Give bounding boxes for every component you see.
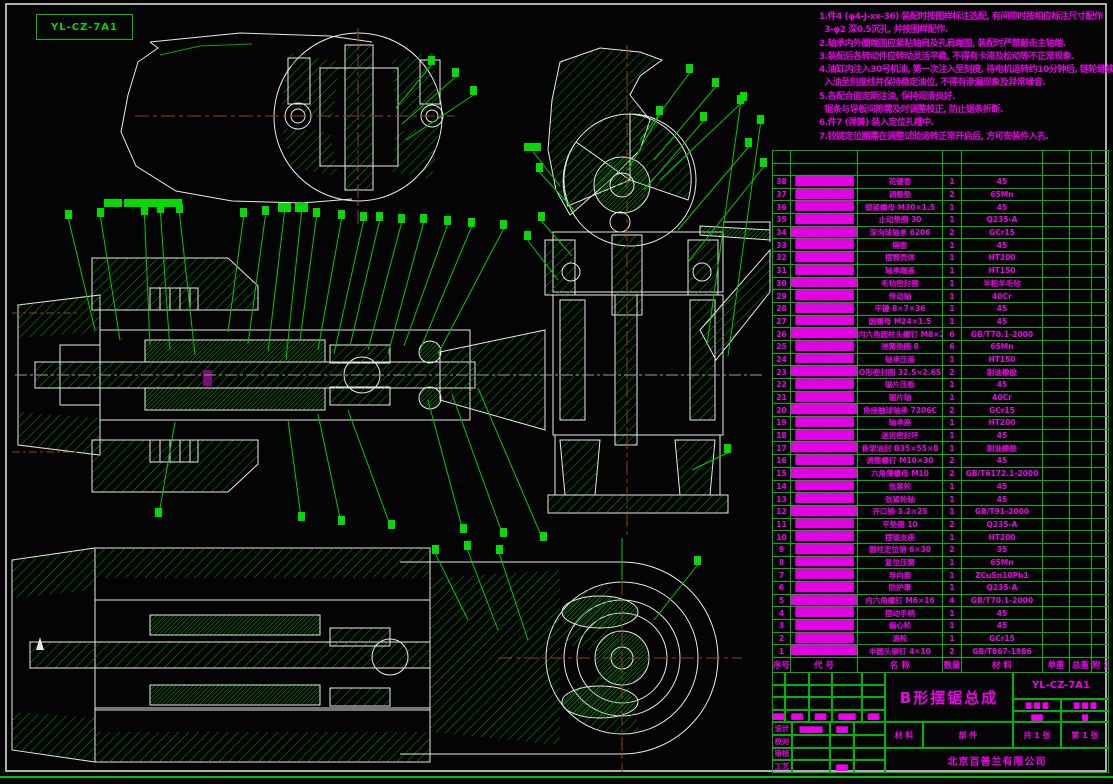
bom-qty: 1 [943,176,962,189]
bom-total-weight [1070,607,1092,620]
bom-qty: 1 [943,302,962,315]
bom-header: 材 料 [962,658,1043,672]
balloon-marker [155,508,162,517]
bom-seq: 4 [773,607,791,620]
bom-qty: 2 [943,404,962,417]
bom-note [1092,226,1109,239]
bom-note [1092,239,1109,252]
bom-unit-weight [1043,505,1070,518]
balloon-marker [540,532,547,541]
bom-note [1092,531,1109,544]
bom-total-weight [1070,252,1092,265]
bom-note [1092,417,1109,430]
signature-cell [792,748,830,761]
bom-seq: 35 [773,214,791,227]
assembly-title: B形摆锯总成 [885,672,1013,722]
bom-unit-weight [1043,252,1070,265]
bom-unit-weight [1043,569,1070,582]
bom-material: 45 [962,493,1043,506]
part-label: 部 件 [923,722,1013,748]
balloon-marker [398,214,405,223]
revision-cell [862,685,885,698]
bom-qty: 1 [943,379,962,392]
signature-cell [854,735,885,748]
bom-seq: 33 [773,239,791,252]
bom-total-weight [1070,366,1092,379]
bom-code: ██████████ [791,417,858,430]
bom-unit-weight [1043,379,1070,392]
bom-unit-weight [1043,290,1070,303]
bom-unit-weight [1043,315,1070,328]
revision-bar [104,199,122,207]
bom-qty: 2 [943,226,962,239]
bom-unit-weight [1043,201,1070,214]
bom-qty: 1 [943,214,962,227]
bom-material: 45 [962,239,1043,252]
bom-total-weight [1070,543,1092,556]
bom-unit-weight [1043,366,1070,379]
bom-seq: 3 [773,620,791,633]
bom-code: ██████████ [791,632,858,645]
bom-name: 内六角螺钉 M6×16 [858,594,943,607]
note-line: 锯条与导板间隙需及时调整校正, 防止锯条折断. [819,104,1111,117]
bom-code: ██████████ [791,214,858,227]
revision-cell: ▆▆ [862,710,885,723]
bom-row: 26██████████████内六角圆柱头螺钉 M8×256GB/T70.1-… [773,328,1109,341]
bom-material: 半粗羊毛毡 [962,277,1043,290]
signature-cell: ▆▆▆▆ [792,722,830,735]
bom-unit-weight [1043,176,1070,189]
bom-seq: 22 [773,379,791,392]
bom-material: HT150 [962,353,1043,366]
bom-qty: 1 [943,277,962,290]
title-block: B形摆锯总成 材 料 部 件 北京百普兰有限公司 YL-CZ-7A1 共 1 张… [772,672,1109,773]
balloon-marker [745,138,752,147]
bom-note [1092,302,1109,315]
bom-code: █████████████ [791,442,858,455]
bom-seq: 25 [773,340,791,353]
bom-total-weight [1070,556,1092,569]
bom-total-weight [1070,531,1092,544]
bom-name: 偏心轮 [858,620,943,633]
bom-header: 附 注 [1092,658,1109,672]
bom-total-weight [1070,290,1092,303]
revision-cell [785,697,809,710]
balloon-marker [737,95,744,104]
bom-code: ██████████ [791,556,858,569]
bom-unit-weight [1043,417,1070,430]
bom-note [1092,645,1109,658]
bom-material: GCr15 [962,632,1043,645]
sheet-number-box: YL-CZ-7A1 [36,14,133,40]
leader-line [438,229,504,354]
stage-mark-cell: ▆ ▆ ▆ [1061,699,1109,711]
revision-cell: ▆▆ [772,710,785,723]
bom-total-weight [1070,467,1092,480]
bom-total-weight [1070,455,1092,468]
bom-note [1092,632,1109,645]
bom-name: 半圆头铆钉 4×10 [858,645,943,658]
leader-line [334,221,364,354]
detail-purple-seal [203,370,212,386]
bom-unit-weight [1043,480,1070,493]
bom-qty: 1 [943,505,962,518]
bom-qty: 2 [943,543,962,556]
bom-seq: 31 [773,264,791,277]
bom-total-weight [1070,277,1092,290]
bom-note [1092,366,1109,379]
bom-row: 17█████████████骨架油封 B35×55×81耐油橡胶 [773,442,1109,455]
balloon-marker [500,528,507,537]
bom-note [1092,214,1109,227]
bom-material: 65Mn [962,556,1043,569]
bom-name: 摆动手柄 [858,607,943,620]
bom-code: █████████████ [791,404,858,417]
bom-code: ██████████ [791,518,858,531]
bom-qty: 1 [943,391,962,404]
bom-total-weight [1070,226,1092,239]
bom-seq: 7 [773,569,791,582]
bom-code: ██████████ [791,480,858,493]
leader-line [404,225,448,346]
bom-row: 6██████████防护罩1Q235-A [773,582,1109,595]
bom-code: ██████████████ [791,467,858,480]
revision-cell [832,697,862,710]
bom-name: 轴承端盖 [858,264,943,277]
bom-note [1092,176,1109,189]
bom-code: ██████████ [791,543,858,556]
bom-note [1092,404,1109,417]
signature-cell: ▆▆ [830,760,854,773]
stage-mark-cell: ▆▆ [1013,711,1061,723]
bom-name: 隔套 [858,239,943,252]
bom-seq: 38 [773,176,791,189]
bom-seq: 28 [773,302,791,315]
bom-name: 轴承座 [858,417,943,430]
bom-qty: 2 [943,455,962,468]
revision-cell [785,685,809,698]
bom-table: 38██████████花键套14537██████████调整垫265Mn36… [772,150,1109,673]
bom-seq: 29 [773,290,791,303]
bom-qty: 1 [943,531,962,544]
bom-total-weight [1070,645,1092,658]
bom-qty: 1 [943,239,962,252]
signature-cell [854,760,885,773]
bom-seq: 37 [773,188,791,201]
bom-qty: 1 [943,620,962,633]
balloon-marker [360,212,367,221]
note-line: 5.各配合面定期注油, 保持润滑良好. [819,91,1111,104]
bom-total-weight [1070,505,1092,518]
bom-seq: 18 [773,429,791,442]
bom-name: 深沟球轴承 6206 [858,226,943,239]
signature-cell [792,735,830,748]
bom-row: 25██████████弹簧垫圈 8665Mn [773,340,1109,353]
bom-code: ██████████ [791,379,858,392]
bom-note [1092,518,1109,531]
balloon-marker [295,203,308,212]
stage-mark-cell: ▆ ▆ ▆ [1013,699,1061,711]
bom-qty: 1 [943,252,962,265]
bom-name: 圆柱定位销 6×30 [858,543,943,556]
bom-qty: 1 [943,442,962,455]
bom-unit-weight [1043,277,1070,290]
bom-row: 23█████████████O形密封圈 32.5×2.652耐油橡胶 [773,366,1109,379]
bom-code: ██████████ [791,290,858,303]
bom-note [1092,328,1109,341]
signature-cell: ▆▆ [830,722,854,735]
revision-cell: ▆▆ [785,710,809,723]
bom-code: ██████████ [791,429,858,442]
balloon-marker [496,545,503,554]
balloon-marker [538,212,545,221]
revision-cell [785,672,809,685]
balloon-marker [240,208,247,217]
bom-note [1092,188,1109,201]
bom-seq: 36 [773,201,791,214]
bom-material: GB/T70.1-2000 [962,328,1043,341]
sheets-total: 共 1 张 [1013,722,1061,748]
bom-total-weight [1070,429,1092,442]
bom-unit-weight [1043,594,1070,607]
bom-note [1092,556,1109,569]
bom-row: 13██████████张紧轮轴145 [773,493,1109,506]
bom-name: 毛毡密封圈 [858,277,943,290]
bom-name: 迷宫密封环 [858,429,943,442]
bom-spacer-row [773,163,1109,176]
bom-name: 花键套 [858,176,943,189]
bom-row: 15██████████████六角薄螺母 M102GB/T6172.1-200… [773,467,1109,480]
bom-seq: 5 [773,594,791,607]
bom-seq: 34 [773,226,791,239]
bom-unit-weight [1043,353,1070,366]
leader-line [300,217,317,340]
revision-cell [862,672,885,685]
bom-row: 27██████████圆螺母 M24×1.5145 [773,315,1109,328]
balloon-marker [376,212,383,221]
signature-cell [830,735,854,748]
signature-label: 审核 [772,748,792,761]
note-line: 2.轴承内外圈端面应紧贴轴肩及孔肩端面, 装配时严禁敲击主轴端. [819,38,1111,51]
bom-name: 锯片压板 [858,379,943,392]
bom-header: 名 称 [858,658,943,672]
revision-cell [772,672,785,685]
note-line: 3-φ2 深0.5沉孔, 并按图样配作. [819,24,1111,37]
bom-note [1092,480,1109,493]
bom-seq: 27 [773,315,791,328]
bom-qty: 4 [943,594,962,607]
bom-unit-weight [1043,302,1070,315]
bom-spacer-row [773,151,1109,164]
bom-material: 45 [962,620,1043,633]
bom-total-weight [1070,480,1092,493]
bom-unit-weight [1043,404,1070,417]
bom-seq: 10 [773,531,791,544]
bom-note [1092,315,1109,328]
balloon-marker [278,203,291,212]
bom-qty: 1 [943,556,962,569]
bom-name: 六角薄螺母 M10 [858,467,943,480]
bom-qty: 6 [943,340,962,353]
bom-name: 平键 8×7×36 [858,302,943,315]
sheet-number: 第 1 张 [1061,722,1109,748]
balloon-marker [428,56,435,65]
bom-code: ██████████ [791,607,858,620]
bom-seq: 21 [773,391,791,404]
bom-unit-weight [1043,188,1070,201]
bom-name: 开口销 3.2×25 [858,505,943,518]
bom-note [1092,391,1109,404]
bom-unit-weight [1043,632,1070,645]
note-line: 7.铰链定位圈需在调整试验运转正常开启后, 方可安装件入孔. [819,131,1111,144]
bom-note [1092,429,1109,442]
bom-code: █████████████ [791,277,858,290]
bom-total-weight [1070,353,1092,366]
bom-unit-weight [1043,543,1070,556]
bom-qty: 1 [943,290,962,303]
bom-row: 38██████████花键套145 [773,176,1109,189]
bom-name: 滚轮 [858,632,943,645]
bom-row: 31██████████轴承端盖1HT150 [773,264,1109,277]
bom-note [1092,277,1109,290]
bom-row: 10██████████摆锯支座1HT200 [773,531,1109,544]
bom-material: 40Cr [962,290,1043,303]
bom-material: 45 [962,315,1043,328]
bom-note [1092,379,1109,392]
bom-row: 33██████████隔套145 [773,239,1109,252]
bom-code: ██████████ [791,531,858,544]
bom-row: 22██████████锯片压板145 [773,379,1109,392]
balloon-marker [313,208,320,217]
bom-note [1092,201,1109,214]
bom-code: ██████████ [791,493,858,506]
bom-qty: 6 [943,328,962,341]
bom-qty: 1 [943,353,962,366]
bom-seq: 9 [773,543,791,556]
revision-cell [832,685,862,698]
bom-note [1092,442,1109,455]
bom-material: 45 [962,379,1043,392]
bom-total-weight [1070,493,1092,506]
signature-cell [854,722,885,735]
bom-total-weight [1070,620,1092,633]
balloon-marker [388,520,395,529]
bom-qty: 1 [943,417,962,430]
bom-code: ██████████ [791,315,858,328]
bom-material: Q235-A [962,214,1043,227]
bom-seq: 26 [773,328,791,341]
bom-name: O形密封圈 32.5×2.65 [858,366,943,379]
bom-code: ██████████ [791,620,858,633]
bom-seq: 11 [773,518,791,531]
bom-material: GB/T6172.1-2000 [962,467,1043,480]
bom-unit-weight [1043,518,1070,531]
balloon-marker [464,541,471,550]
bom-name: 张紧轮 [858,480,943,493]
bom-unit-weight [1043,226,1070,239]
bom-material: HT200 [962,252,1043,265]
bom-note [1092,252,1109,265]
balloon-marker [298,512,305,521]
bom-code: ██████████████ [791,594,858,607]
bom-material: Q235-A [962,582,1043,595]
bom-material: 35 [962,543,1043,556]
bom-row: 28██████████平键 8×7×36145 [773,302,1109,315]
revision-cell [809,685,832,698]
drawing-number: YL-CZ-7A1 [1013,672,1109,699]
bom-seq: 2 [773,632,791,645]
bom-total-weight [1070,518,1092,531]
bom-row: 29██████████传动轴140Cr [773,290,1109,303]
bom-qty: 1 [943,493,962,506]
bom-header-row: 序号代 号名 称数量材 料单重总重附 注 [773,658,1109,672]
bom-name: 弹簧垫圈 8 [858,340,943,353]
bom-name: 导向套 [858,569,943,582]
view-top-left-clamp [121,28,455,228]
bom-code: ██████████████ [791,645,858,658]
bom-code: ██████████ [791,340,858,353]
stage-mark-cell: ▆ [1061,711,1109,723]
bom-unit-weight [1043,620,1070,633]
bom-note [1092,607,1109,620]
revision-bar [124,199,182,207]
bom-qty: 1 [943,632,962,645]
bom-row: 34█████████████深沟球轴承 62062GCr15 [773,226,1109,239]
bom-row: 8██████████复位压簧165Mn [773,556,1109,569]
bom-material: 45 [962,607,1043,620]
bom-code: ██████████ [791,569,858,582]
bom-row: 37██████████调整垫265Mn [773,188,1109,201]
technical-notes: 1.件4 (φ4-J-xx-36) 装配时按图样标注选配, 有间隙时按相应标注尺… [819,11,1111,144]
bom-seq: 24 [773,353,791,366]
bom-name: 锯片轴 [858,391,943,404]
view-main-section [12,250,770,492]
balloon-marker [686,64,693,73]
note-line: 3.装配后各转动件应转动灵活平稳, 不得有卡滞及松动等不正常现象. [819,51,1111,64]
bom-material: GB/T91-2000 [962,505,1043,518]
bom-row: 4██████████摆动手柄145 [773,607,1109,620]
view-bottom-assembly [12,538,742,772]
bom-code: ██████████ [791,353,858,366]
bom-material: 45 [962,302,1043,315]
bom-seq: 14 [773,480,791,493]
bom-row: 14██████████张紧轮145 [773,480,1109,493]
bom-total-weight [1070,302,1092,315]
bom-qty: 2 [943,188,962,201]
bom-row: 3██████████偏心轮145 [773,620,1109,633]
bom-material: 45 [962,201,1043,214]
bom-material: HT150 [962,264,1043,277]
material-label: 材 料 [885,722,923,748]
leader-line [368,223,402,350]
note-line: 入油至刻度线并保持稳定油位, 不得有渗漏现象及异常噪音. [819,77,1111,90]
bom-row: 36██████████锁紧螺母 M30×1.5145 [773,201,1109,214]
bom-material: 45 [962,480,1043,493]
bom-note [1092,493,1109,506]
bom-total-weight [1070,328,1092,341]
bom-code: ██████████ [791,455,858,468]
bom-note [1092,353,1109,366]
signature-cell [830,748,854,761]
signature-cell [854,748,885,761]
balloon-marker [694,556,701,565]
balloon-marker [65,210,72,219]
bom-material: ZCuSn10Pb1 [962,569,1043,582]
bom-code: ██████████ [791,391,858,404]
balloon-marker [262,206,269,215]
bom-qty: 1 [943,315,962,328]
bom-name: 摆臂壳体 [858,252,943,265]
